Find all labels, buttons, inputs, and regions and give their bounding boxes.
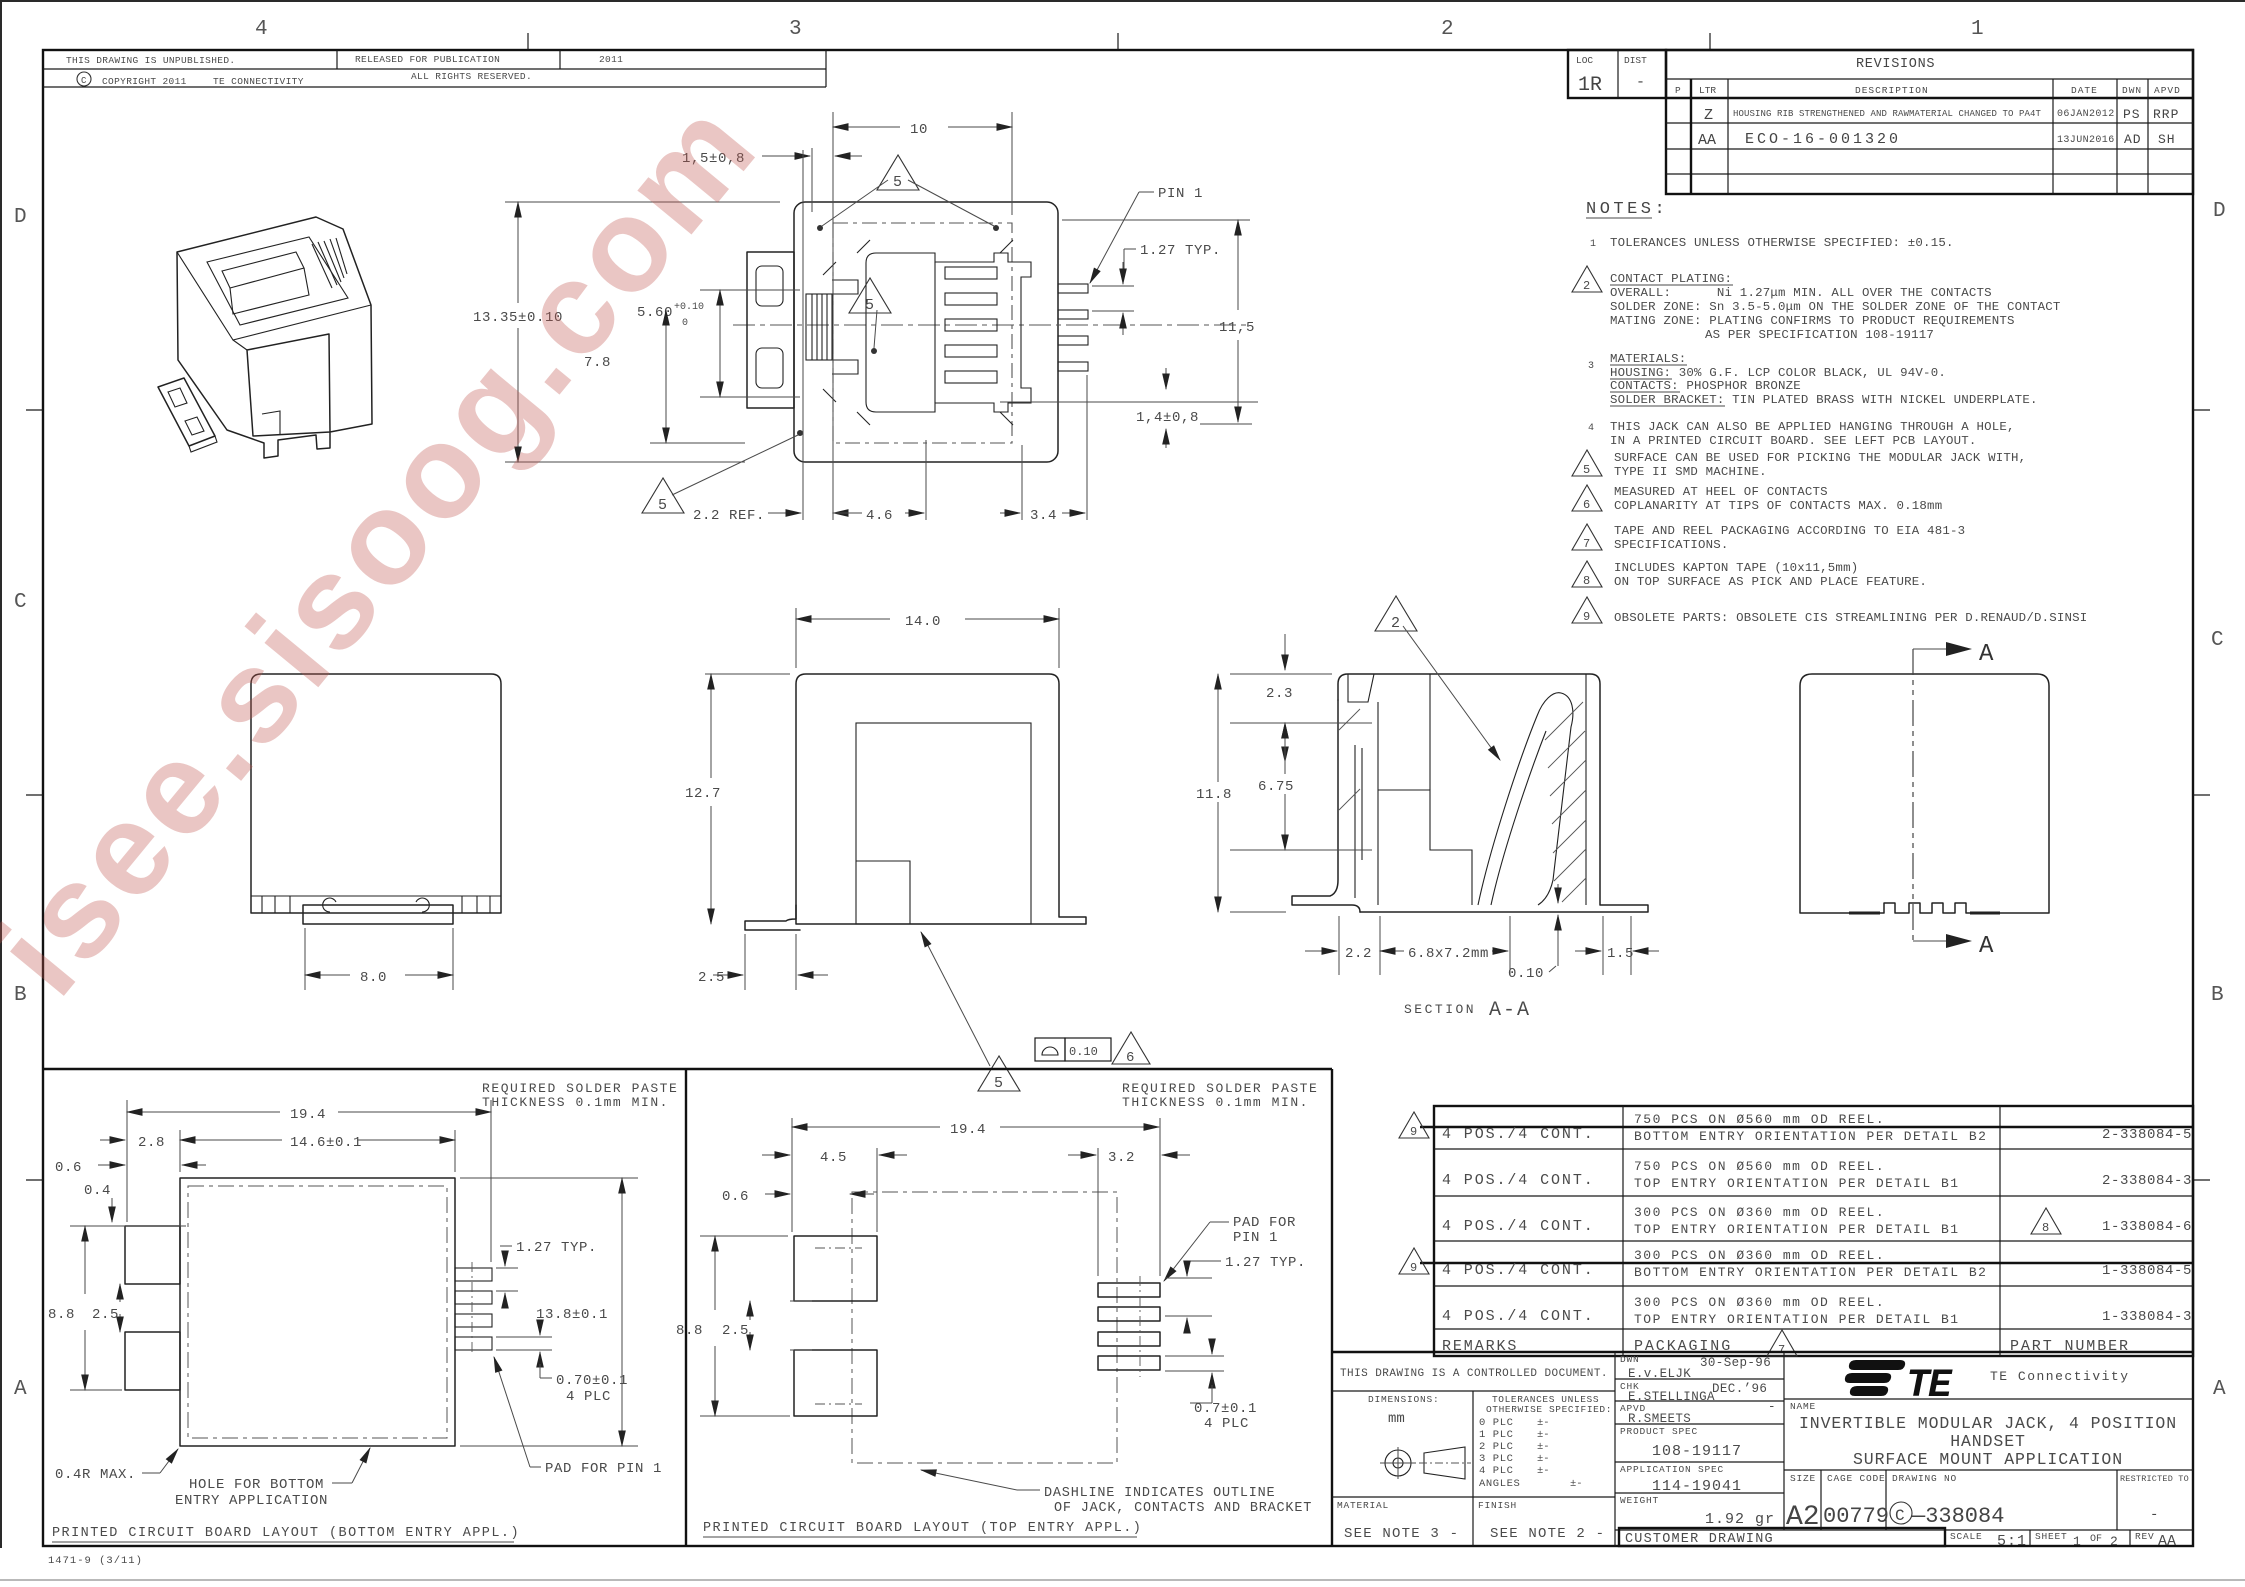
svg-text:5: 5 [865,297,874,314]
svg-text:ALL RIGHTS RESERVED.: ALL RIGHTS RESERVED. [411,71,532,82]
svg-text:A: A [2213,1378,2226,1401]
svg-text:3: 3 [789,18,802,41]
svg-text:TE CONNECTIVITY: TE CONNECTIVITY [213,76,304,87]
svg-text:INVERTIBLE MODULAR JACK, 4 POS: INVERTIBLE MODULAR JACK, 4 POSITION [1799,1414,2177,1433]
svg-text:4 POS./4 CONT.: 4 POS./4 CONT. [1442,1218,1595,1235]
svg-text:0.70±0.1: 0.70±0.1 [556,1373,628,1389]
svg-text:SEE NOTE 3 -: SEE NOTE 3 - [1344,1526,1459,1542]
svg-text:DATE: DATE [2071,85,2098,96]
svg-text:P: P [1675,85,1681,96]
svg-text:6.75: 6.75 [1258,779,1294,795]
svg-text:TAPE AND REEL PACKAGING ACCORD: TAPE AND REEL PACKAGING ACCORDING TO EIA… [1614,524,1965,538]
svg-text:750 PCS ON Ø560 mm OD REEL.: 750 PCS ON Ø560 mm OD REEL. [1634,1112,1885,1127]
svg-text:1 PLC: 1 PLC [1479,1429,1514,1441]
svg-text:R.SMEETS: R.SMEETS [1628,1412,1691,1426]
svg-text:1: 1 [2073,1534,2081,1549]
svg-text:0.10: 0.10 [1508,966,1544,982]
svg-text:AA: AA [1698,132,1716,149]
svg-text:19.4: 19.4 [290,1107,326,1123]
svg-text:±-: ±- [1537,1441,1550,1453]
svg-text:-: - [2150,1507,2158,1523]
svg-text:4 POS./4 CONT.: 4 POS./4 CONT. [1442,1126,1595,1143]
svg-text:DWN: DWN [2122,85,2142,96]
svg-text:TE Connectivity: TE Connectivity [1990,1369,2130,1384]
svg-text:0 PLC: 0 PLC [1479,1417,1514,1429]
svg-text:SH: SH [2158,132,2176,147]
svg-text:MATERIALS:: MATERIALS: [1610,352,1686,366]
svg-text:TOLERANCES UNLESS OTHERWISE SP: TOLERANCES UNLESS OTHERWISE SPECIFIED: ±… [1610,236,1954,250]
svg-text:1.27 TYP.: 1.27 TYP. [516,1240,597,1256]
svg-text:4 PLC: 4 PLC [1204,1416,1249,1432]
svg-text:E.STELLINGA: E.STELLINGA [1628,1390,1715,1404]
svg-text:C: C [2211,629,2224,652]
svg-text:13.8±0.1: 13.8±0.1 [536,1307,608,1323]
svg-text:14.6±0.1: 14.6±0.1 [290,1135,362,1151]
svg-text:CONTACT PLATING:: CONTACT PLATING: [1610,272,1732,286]
svg-text:PAD FOR PIN 1: PAD FOR PIN 1 [545,1461,662,1477]
svg-text:NAME: NAME [1790,1401,1816,1412]
svg-text:A-A: A-A [1489,999,1531,1022]
svg-text:D: D [2213,200,2226,223]
svg-text:±-: ±- [1537,1453,1550,1465]
svg-text:MEASURED AT HEEL OF CONTACTS: MEASURED AT HEEL OF CONTACTS [1614,485,1828,499]
svg-text:8: 8 [2042,1221,2049,1235]
svg-text:B: B [2211,984,2224,1007]
svg-text:ON TOP SURFACE AS PICK AND PLA: ON TOP SURFACE AS PICK AND PLACE FEATURE… [1614,575,1927,589]
svg-text:6: 6 [1126,1050,1134,1066]
svg-text:8.8: 8.8 [676,1323,703,1339]
svg-text:6.8x7.2mm: 6.8x7.2mm [1408,946,1489,962]
svg-text:8.0: 8.0 [360,970,387,986]
svg-text:SEE NOTE 2 -: SEE NOTE 2 - [1490,1526,1605,1542]
svg-text:PRINTED CIRCUIT BOARD LAYOUT (: PRINTED CIRCUIT BOARD LAYOUT (TOP ENTRY … [703,1521,1142,1536]
svg-text:108-19117: 108-19117 [1652,1443,1742,1460]
svg-text:SECTION: SECTION [1404,1002,1476,1017]
svg-text:6: 6 [1583,498,1590,512]
svg-text:DASHLINE INDICATES OUTLINE: DASHLINE INDICATES OUTLINE [1044,1486,1275,1501]
svg-text:8: 8 [1583,574,1590,588]
svg-text:0.4R MAX.: 0.4R MAX. [55,1467,136,1483]
svg-text:750 PCS ON Ø560 mm OD REEL.: 750 PCS ON Ø560 mm OD REEL. [1634,1159,1885,1174]
svg-text:1-338084-3: 1-338084-3 [2102,1309,2192,1325]
svg-text:THIS DRAWING IS A CONTROLLED D: THIS DRAWING IS A CONTROLLED DOCUMENT. [1340,1368,1608,1380]
svg-text:2: 2 [1391,615,1400,632]
svg-text:C: C [1895,1507,1905,1525]
svg-text:2: 2 [2110,1534,2118,1549]
svg-text:SPECIFICATIONS.: SPECIFICATIONS. [1614,538,1729,552]
svg-text:-: - [1636,74,1645,91]
svg-text:9: 9 [1410,1261,1417,1275]
svg-text:2.8: 2.8 [138,1135,165,1151]
svg-text:SCALE: SCALE [1950,1531,1983,1542]
svg-text:PAD FOR: PAD FOR [1233,1215,1296,1231]
svg-text:TOP ENTRY ORIENTATION PER DETA: TOP ENTRY ORIENTATION PER DETAIL B1 [1634,1312,1960,1327]
svg-text:AD: AD [2124,132,2142,147]
svg-text:4 PLC: 4 PLC [566,1389,611,1405]
svg-text:COPLANARITY AT TIPS OF CONTACT: COPLANARITY AT TIPS OF CONTACTS MAX. 0.1… [1614,499,1942,513]
svg-text:4 PLC: 4 PLC [1479,1465,1514,1477]
svg-text:5: 5 [658,497,667,514]
svg-text:WEIGHT: WEIGHT [1620,1495,1659,1506]
svg-text:2.3: 2.3 [1266,686,1293,702]
svg-text:1,4±0,8: 1,4±0,8 [1136,410,1199,426]
svg-text:RELEASED FOR PUBLICATION: RELEASED FOR PUBLICATION [355,54,500,65]
svg-text:DWN: DWN [1620,1354,1640,1365]
svg-text:4.5: 4.5 [820,1150,847,1166]
svg-text:FINISH: FINISH [1478,1500,1517,1511]
svg-text:4 POS./4 CONT.: 4 POS./4 CONT. [1442,1262,1595,1279]
svg-text:DIMENSIONS:: DIMENSIONS: [1368,1394,1440,1405]
svg-text:SOLDER ZONE: Sn 3.5-5.0μm ON T: SOLDER ZONE: Sn 3.5-5.0μm ON THE SOLDER … [1610,300,2061,314]
svg-text:mm: mm [1388,1411,1405,1427]
svg-text:2-338084-3: 2-338084-3 [2102,1173,2192,1189]
svg-text:E.v.ELJK: E.v.ELJK [1628,1367,1691,1381]
svg-text:D: D [14,206,27,229]
svg-text:TOP ENTRY ORIENTATION PER DETA: TOP ENTRY ORIENTATION PER DETAIL B1 [1634,1222,1960,1237]
svg-text:ENTRY APPLICATION: ENTRY APPLICATION [175,1493,328,1509]
svg-text:1.27 TYP.: 1.27 TYP. [1225,1255,1306,1271]
svg-text:1.92 gr: 1.92 gr [1705,1511,1775,1528]
svg-text:CAGE CODE: CAGE CODE [1827,1473,1886,1484]
svg-text:114-19041: 114-19041 [1652,1478,1742,1495]
svg-text:HOUSING RIB STRENGTHENED AND R: HOUSING RIB STRENGTHENED AND RAWMATERIAL… [1733,109,2042,119]
svg-text:12.7: 12.7 [685,786,721,802]
svg-text:11.8: 11.8 [1196,787,1232,803]
svg-text:0.7±0.1: 0.7±0.1 [1194,1401,1257,1417]
svg-text:SURFACE MOUNT APPLICATION: SURFACE MOUNT APPLICATION [1853,1450,2123,1469]
svg-text:300 PCS ON Ø360 mm OD REEL.: 300 PCS ON Ø360 mm OD REEL. [1634,1248,1885,1263]
svg-text:9: 9 [1410,1125,1417,1139]
svg-text:RESTRICTED TO: RESTRICTED TO [2120,1474,2189,1484]
svg-text:PRINTED CIRCUIT BOARD LAYOUT (: PRINTED CIRCUIT BOARD LAYOUT (BOTTOM ENT… [52,1526,520,1541]
svg-text:DRAWING NO: DRAWING NO [1892,1473,1957,1484]
svg-text:OF JACK, CONTACTS AND BRACKET: OF JACK, CONTACTS AND BRACKET [1054,1501,1312,1516]
svg-text:DESCRIPTION: DESCRIPTION [1855,85,1929,96]
svg-text:APPLICATION SPEC: APPLICATION SPEC [1620,1464,1724,1475]
svg-text:4 POS./4 CONT.: 4 POS./4 CONT. [1442,1308,1595,1325]
svg-text:SOLDER BRACKET: TIN PLATED BR: SOLDER BRACKET: TIN PLATED BRASS WITH NI… [1610,393,2038,407]
svg-text:1: 1 [1590,239,1596,250]
svg-text:TYPE II SMD MACHINE.: TYPE II SMD MACHINE. [1614,465,1767,479]
svg-text:AA: AA [2158,1533,2176,1550]
svg-text:1471-9 (3/11): 1471-9 (3/11) [48,1555,143,1567]
svg-text:5: 5 [1583,463,1590,477]
svg-text:OBSOLETE PARTS: OBSOLETE CIS S: OBSOLETE PARTS: OBSOLETE CIS STREAMLININ… [1614,611,2087,625]
svg-text:2.2: 2.2 [1345,946,1372,962]
svg-text:1-338084-5: 1-338084-5 [2102,1263,2192,1279]
svg-text:30-Sep-96: 30-Sep-96 [1700,1356,1771,1370]
svg-text:REQUIRED SOLDER PASTE: REQUIRED SOLDER PASTE [1122,1081,1318,1096]
svg-text:PIN 1: PIN 1 [1233,1230,1278,1246]
svg-text:BOTTOM ENTRY ORIENTATION PER D: BOTTOM ENTRY ORIENTATION PER DETAIL B2 [1634,1129,1987,1144]
svg-text:MATERIAL: MATERIAL [1337,1500,1389,1511]
svg-text:00779: 00779 [1823,1504,1889,1529]
svg-text:THIS JACK CAN ALSO BE APPLIED: THIS JACK CAN ALSO BE APPLIED HANGING TH… [1610,420,2015,434]
svg-text:300 PCS ON Ø360 mm OD REEL.: 300 PCS ON Ø360 mm OD REEL. [1634,1205,1885,1220]
svg-text:2.5: 2.5 [92,1307,119,1323]
svg-text:-: - [1768,1400,1776,1414]
svg-text:13JUN2016: 13JUN2016 [2057,135,2115,146]
svg-text:0.6: 0.6 [55,1160,82,1176]
svg-text:2: 2 [1583,279,1590,293]
svg-text:8.8: 8.8 [48,1307,75,1323]
svg-text:0.10: 0.10 [1069,1045,1098,1059]
svg-text:3.4: 3.4 [1030,508,1057,524]
svg-text:OTHERWISE SPECIFIED:: OTHERWISE SPECIFIED: [1486,1404,1612,1415]
svg-text:ANGLES: ANGLES [1479,1478,1520,1490]
svg-text:SIZE: SIZE [1790,1473,1816,1484]
svg-text:4: 4 [1588,423,1594,434]
svg-text:2: 2 [1441,18,1454,41]
svg-text:0: 0 [682,318,688,329]
svg-text:±-: ±- [1537,1465,1550,1477]
svg-text:HOUSING: 30% G.F. LCP COLOR B: HOUSING: 30% G.F. LCP COLOR BLACK, UL 94… [1610,366,1946,380]
svg-text:REV: REV [2135,1531,2155,1542]
svg-text:1-338084-6: 1-338084-6 [2102,1219,2192,1235]
svg-text:CUSTOMER DRAWING: CUSTOMER DRAWING [1625,1532,1774,1547]
svg-text:PRODUCT SPEC: PRODUCT SPEC [1620,1426,1698,1437]
svg-text:300 PCS ON Ø360 mm OD REEL.: 300 PCS ON Ø360 mm OD REEL. [1634,1295,1885,1310]
svg-text:11,5: 11,5 [1219,320,1255,336]
svg-text:DEC.’96: DEC.’96 [1712,1382,1767,1396]
svg-text:SHEET: SHEET [2035,1531,2068,1542]
svg-text:INCLUDES KAPTON TAPE (10x11,5m: INCLUDES KAPTON TAPE (10x11,5mm) [1614,561,1858,575]
svg-text:1.27 TYP.: 1.27 TYP. [1140,243,1221,259]
svg-text:14.0: 14.0 [905,614,941,630]
svg-text:ECO-16-001320: ECO-16-001320 [1745,131,1901,148]
svg-text:C: C [14,591,27,614]
svg-text:OVERALL: Ni 1.27μm MIN. A: OVERALL: Ni 1.27μm MIN. ALL OVER THE CON… [1610,286,1992,300]
svg-text:3 PLC: 3 PLC [1479,1453,1514,1465]
svg-text:±-: ±- [1537,1429,1550,1441]
svg-text:DIST: DIST [1624,55,1647,66]
svg-text:1: 1 [1971,18,1984,41]
svg-text:2.5: 2.5 [698,970,725,986]
svg-text:2 PLC: 2 PLC [1479,1441,1514,1453]
svg-text:Z: Z [1704,107,1713,124]
svg-text:THIS DRAWING IS UNPUBLISHED.: THIS DRAWING IS UNPUBLISHED. [66,55,235,66]
svg-text:NOTES:: NOTES: [1586,200,1668,219]
svg-text:C: C [81,76,87,86]
svg-text:HANDSET: HANDSET [1950,1432,2026,1451]
svg-text:—338084: —338084 [1911,1504,2004,1529]
svg-text:2.2 REF.: 2.2 REF. [693,508,765,524]
svg-text:AS PER SPECIFICATION 108-19117: AS PER SPECIFICATION 108-19117 [1705,328,1934,342]
svg-text:5: 5 [994,1075,1003,1092]
svg-text:2.5: 2.5 [722,1323,749,1339]
svg-text:7: 7 [1583,537,1590,551]
svg-text:4 POS./4 CONT.: 4 POS./4 CONT. [1442,1172,1595,1189]
svg-text:THICKNESS 0.1mm MIN.: THICKNESS 0.1mm MIN. [1122,1095,1309,1110]
svg-text:MATING ZONE: PLATING CONFIRMS: MATING ZONE: PLATING CONFIRMS TO PRODUCT… [1610,314,2015,328]
svg-text:COPYRIGHT 2011: COPYRIGHT 2011 [102,76,187,87]
svg-text:5:1: 5:1 [1997,1533,2027,1550]
svg-text:2-338084-5: 2-338084-5 [2102,1127,2192,1143]
svg-text:9: 9 [1583,610,1590,624]
svg-text:1R: 1R [1578,74,1602,97]
svg-text:1.5: 1.5 [1607,946,1634,962]
svg-text:TOP ENTRY ORIENTATION PER DETA: TOP ENTRY ORIENTATION PER DETAIL B1 [1634,1176,1960,1191]
svg-text:B: B [14,984,27,1007]
svg-text:LOC: LOC [1576,55,1593,66]
svg-text:SURFACE CAN BE USED FOR PICKIN: SURFACE CAN BE USED FOR PICKING THE MODU… [1614,451,2026,465]
svg-text:0.6: 0.6 [722,1189,749,1205]
svg-text:THICKNESS 0.1mm MIN.: THICKNESS 0.1mm MIN. [482,1095,669,1110]
svg-text:OF: OF [2090,1534,2102,1545]
svg-text:LTR: LTR [1699,85,1716,96]
svg-text:A: A [1979,641,1994,668]
svg-text:PIN 1: PIN 1 [1158,186,1203,202]
svg-text:TE: TE [1906,1364,1953,1409]
svg-text:4: 4 [255,18,268,41]
svg-text:BOTTOM ENTRY ORIENTATION PER D: BOTTOM ENTRY ORIENTATION PER DETAIL B2 [1634,1265,1987,1280]
svg-text:5: 5 [893,174,902,191]
svg-text:A: A [1979,933,1994,960]
svg-text:REQUIRED SOLDER PASTE: REQUIRED SOLDER PASTE [482,1081,678,1096]
svg-text:APVD: APVD [2154,85,2181,96]
svg-text:06JAN2012: 06JAN2012 [2057,109,2115,120]
svg-text:A: A [14,1378,27,1401]
svg-text:PS: PS [2123,107,2141,122]
svg-text:±-: ±- [1537,1417,1550,1429]
svg-text:19.4: 19.4 [950,1122,986,1138]
svg-text:3: 3 [1588,361,1594,372]
svg-text:HOLE FOR BOTTOM: HOLE FOR BOTTOM [189,1477,324,1493]
svg-text:REVISIONS: REVISIONS [1856,57,1935,72]
svg-text:RRP: RRP [2153,107,2179,122]
svg-text:4.6: 4.6 [866,508,893,524]
svg-text:IN A PRINTED CIRCUIT BOARD. SE: IN A PRINTED CIRCUIT BOARD. SEE LEFT PCB… [1610,434,1977,448]
svg-text:CONTACTS: PHOSPHOR BRONZE: CONTACTS: PHOSPHOR BRONZE [1610,379,1801,393]
svg-text:2011: 2011 [599,54,623,65]
svg-text:10: 10 [910,122,928,138]
svg-text:±-: ±- [1570,1478,1583,1490]
svg-text:0.4: 0.4 [84,1183,111,1199]
svg-text:3.2: 3.2 [1108,1150,1135,1166]
svg-text:+0.10: +0.10 [674,302,704,313]
